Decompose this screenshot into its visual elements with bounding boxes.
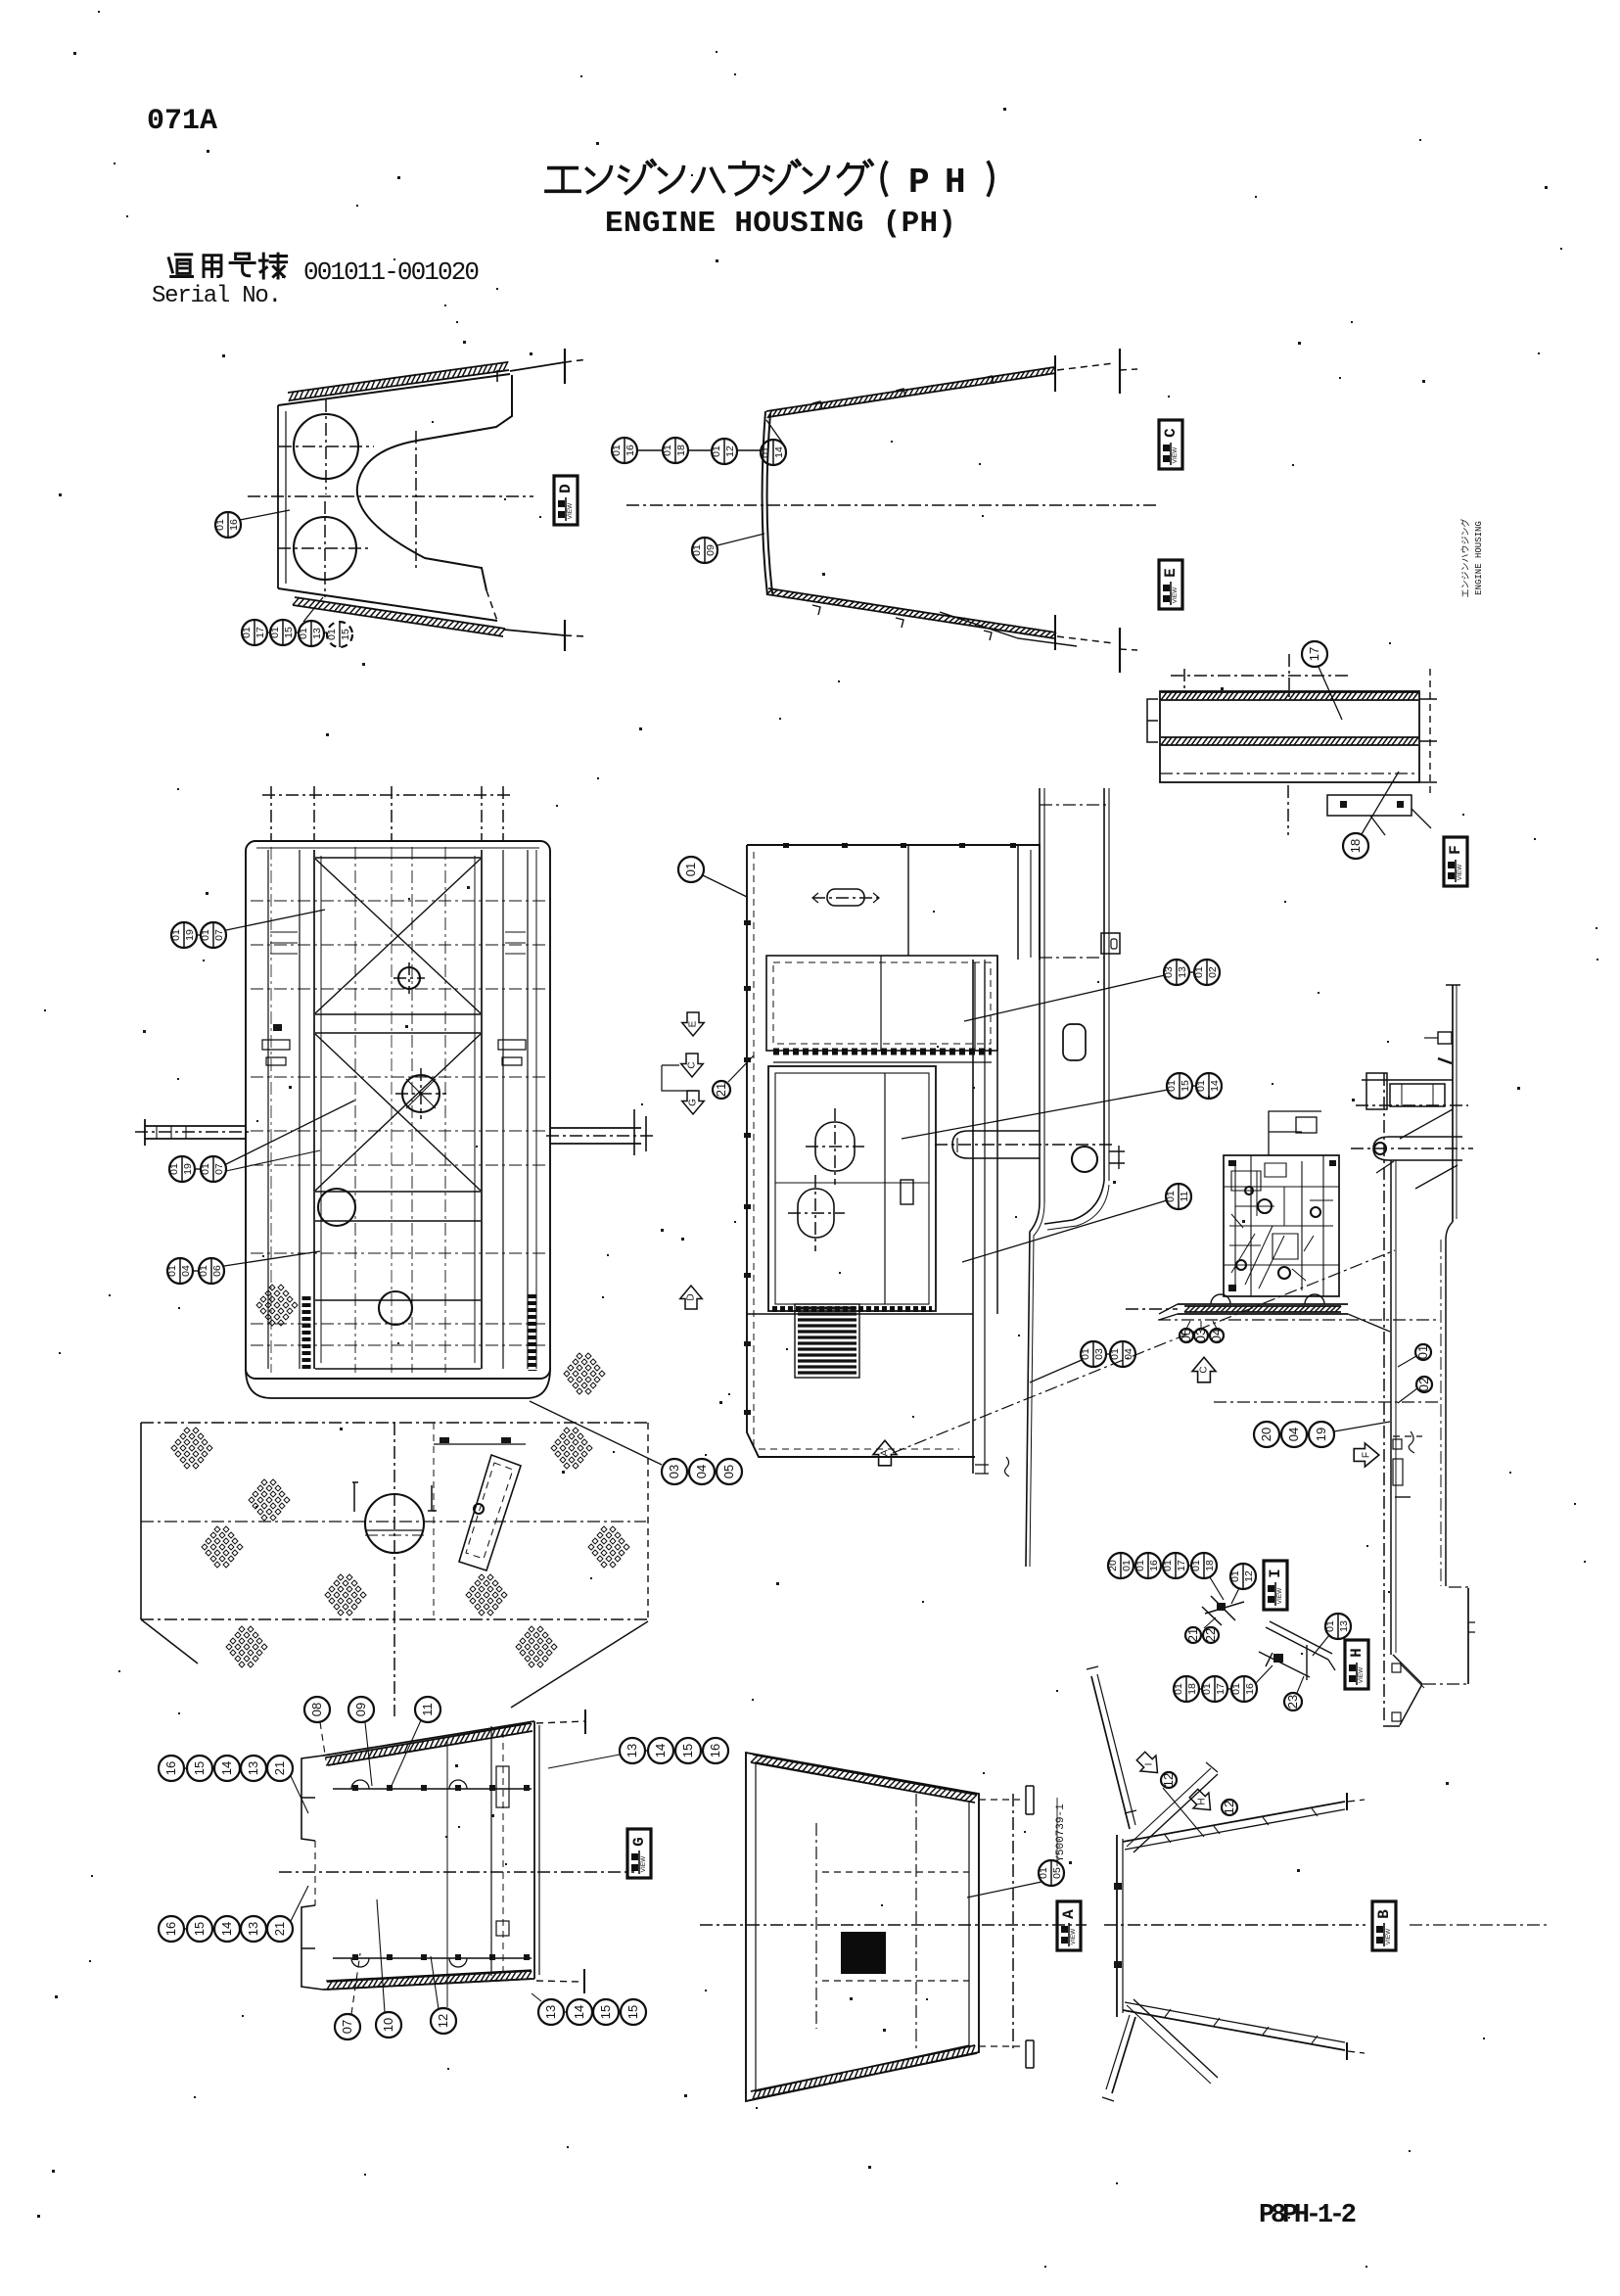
svg-text:E: E: [1162, 568, 1180, 578]
svg-text:01: 01: [166, 1265, 178, 1277]
svg-text:01: 01: [326, 629, 338, 640]
svg-text:01: 01: [1195, 1080, 1207, 1092]
svg-text:14: 14: [773, 446, 785, 458]
svg-text:H: H: [1197, 1798, 1208, 1804]
svg-text:03: 03: [1193, 1329, 1208, 1342]
svg-text:05: 05: [1179, 1329, 1193, 1342]
svg-text:01: 01: [298, 628, 309, 639]
svg-text:16: 16: [1148, 1560, 1160, 1571]
svg-text:21: 21: [272, 1922, 287, 1936]
svg-text:20: 20: [1107, 1560, 1119, 1571]
svg-text:04: 04: [694, 1465, 709, 1478]
svg-text:P: P: [908, 163, 930, 203]
svg-text:19: 19: [1314, 1428, 1328, 1441]
svg-text:01: 01: [1080, 1348, 1091, 1360]
svg-text:01: 01: [1173, 1683, 1184, 1695]
svg-text:14: 14: [653, 1744, 668, 1757]
svg-text:01: 01: [1324, 1620, 1336, 1632]
svg-text:G: G: [688, 1099, 699, 1106]
svg-text:16: 16: [163, 1922, 178, 1936]
svg-text:H: H: [945, 163, 966, 203]
svg-text:21: 21: [272, 1761, 287, 1775]
svg-text:03: 03: [667, 1465, 681, 1478]
svg-text:09: 09: [353, 1703, 368, 1716]
svg-text:F: F: [1362, 1452, 1372, 1458]
svg-text:VIEW: VIEW: [1070, 1928, 1077, 1945]
svg-text:17: 17: [1307, 647, 1321, 661]
svg-text:VIEW: VIEW: [1385, 1928, 1392, 1945]
svg-text:02: 02: [1416, 1378, 1431, 1391]
svg-text:11: 11: [1179, 1191, 1190, 1201]
svg-text:C: C: [1162, 428, 1180, 438]
svg-text:VIEW: VIEW: [1172, 586, 1179, 603]
svg-text:E: E: [688, 1020, 699, 1027]
svg-text:I: I: [1144, 1763, 1155, 1766]
svg-text:VIEW: VIEW: [640, 1855, 647, 1872]
svg-text:11: 11: [420, 1703, 435, 1716]
svg-text:05: 05: [721, 1465, 736, 1478]
svg-text:01: 01: [241, 627, 253, 638]
svg-text:エンジンハウジング: エンジンハウジング: [1459, 518, 1470, 597]
svg-text:01: 01: [198, 1265, 209, 1277]
svg-text:15: 15: [680, 1744, 695, 1757]
svg-text:01: 01: [1162, 1560, 1174, 1571]
svg-text:ENGINE HOUSING (PH): ENGINE HOUSING (PH): [605, 207, 956, 241]
svg-text:05: 05: [1051, 1867, 1063, 1879]
svg-text:12: 12: [1222, 1801, 1236, 1814]
svg-text:01: 01: [1201, 1683, 1213, 1695]
svg-text:14: 14: [1209, 1080, 1221, 1092]
svg-text:16: 16: [163, 1761, 178, 1775]
svg-text:01: 01: [1415, 1345, 1430, 1359]
svg-text:01: 01: [1165, 1191, 1177, 1202]
svg-text:01: 01: [760, 446, 771, 458]
svg-text:071A: 071A: [147, 105, 217, 138]
svg-text:01: 01: [1230, 1683, 1242, 1695]
svg-text:12: 12: [436, 2014, 450, 2028]
svg-text:04: 04: [1286, 1428, 1301, 1441]
svg-text:07: 07: [340, 2020, 354, 2034]
svg-text:17: 17: [255, 627, 266, 638]
svg-text:03: 03: [1093, 1348, 1105, 1360]
svg-text:16: 16: [228, 519, 240, 531]
svg-text:23: 23: [1285, 1695, 1300, 1709]
svg-text:14: 14: [219, 1922, 234, 1936]
svg-text:15: 15: [340, 629, 351, 640]
svg-text:01: 01: [214, 519, 226, 531]
svg-text:16: 16: [1244, 1683, 1256, 1695]
svg-text:01: 01: [1038, 1867, 1049, 1879]
svg-text:01: 01: [1190, 1560, 1202, 1571]
svg-text:04: 04: [1209, 1329, 1224, 1342]
svg-text:01: 01: [200, 1163, 211, 1175]
svg-text:01: 01: [269, 627, 281, 638]
svg-text:18: 18: [1348, 839, 1363, 853]
svg-text:03: 03: [1163, 966, 1175, 978]
svg-text:22: 22: [1203, 1628, 1218, 1642]
svg-text:C: C: [687, 1061, 698, 1068]
svg-text:A: A: [1060, 1909, 1078, 1919]
svg-text:07: 07: [213, 929, 225, 941]
svg-text:VIEW: VIEW: [567, 502, 574, 519]
svg-text:13: 13: [543, 2005, 558, 2019]
svg-text:01: 01: [170, 929, 182, 941]
svg-text:VIEW: VIEW: [1358, 1666, 1365, 1683]
svg-text:01: 01: [1193, 966, 1205, 978]
svg-text:13: 13: [1338, 1620, 1350, 1632]
svg-text:10: 10: [381, 2018, 395, 2032]
svg-text:15: 15: [192, 1761, 207, 1775]
svg-text:01: 01: [200, 929, 211, 941]
svg-text:VIEW: VIEW: [1457, 864, 1463, 880]
svg-text:01: 01: [611, 445, 623, 456]
svg-text:16: 16: [708, 1744, 722, 1757]
svg-text:04: 04: [180, 1265, 192, 1277]
svg-text:C: C: [1199, 1366, 1210, 1373]
svg-text:01: 01: [1121, 1560, 1133, 1571]
svg-text:01: 01: [168, 1163, 180, 1175]
svg-text:H: H: [1348, 1648, 1365, 1658]
svg-text:14: 14: [572, 2005, 586, 2019]
svg-text:ENGINE HOUSING: ENGINE HOUSING: [1474, 521, 1484, 595]
svg-text:VIEW: VIEW: [1276, 1587, 1283, 1604]
svg-text:21: 21: [1185, 1628, 1200, 1642]
svg-text:15: 15: [1180, 1080, 1191, 1092]
svg-text:D: D: [686, 1293, 697, 1300]
svg-text:09: 09: [705, 544, 717, 556]
svg-text:15: 15: [192, 1922, 207, 1936]
svg-text:13: 13: [1177, 966, 1188, 978]
svg-text:08: 08: [309, 1703, 324, 1716]
svg-text:13: 13: [246, 1922, 260, 1936]
svg-text:Serial No.: Serial No.: [152, 283, 282, 309]
svg-text:19: 19: [182, 1163, 194, 1175]
svg-text:02: 02: [1207, 966, 1219, 978]
svg-text:B: B: [1375, 1909, 1393, 1919]
svg-text:01: 01: [1109, 1348, 1121, 1360]
svg-text:01: 01: [1166, 1080, 1178, 1092]
svg-text:18: 18: [1204, 1560, 1216, 1571]
svg-text:A: A: [880, 1449, 891, 1456]
svg-text:15: 15: [598, 2005, 613, 2019]
svg-text:P8PH-1-2: P8PH-1-2: [1259, 2201, 1357, 2230]
svg-text:13: 13: [625, 1744, 639, 1757]
svg-text:17: 17: [1176, 1560, 1187, 1571]
svg-text:15: 15: [625, 2005, 640, 2019]
svg-text:18: 18: [675, 445, 687, 456]
svg-text:VIEW: VIEW: [1172, 446, 1179, 463]
svg-text:G: G: [630, 1837, 648, 1847]
svg-text:07: 07: [213, 1163, 225, 1175]
svg-text:16: 16: [625, 445, 636, 456]
svg-text:13: 13: [311, 628, 323, 639]
svg-text:01: 01: [1229, 1570, 1241, 1582]
svg-text:12: 12: [1161, 1773, 1176, 1787]
svg-text:001011-001020: 001011-001020: [303, 258, 480, 287]
svg-text:15: 15: [283, 627, 295, 638]
svg-text:21: 21: [714, 1083, 728, 1097]
svg-text:01: 01: [683, 863, 698, 876]
svg-text:01: 01: [711, 445, 722, 457]
svg-text:14: 14: [219, 1761, 234, 1775]
svg-text:12: 12: [724, 445, 736, 457]
svg-text:01: 01: [1134, 1560, 1146, 1571]
svg-text:13: 13: [246, 1761, 260, 1775]
svg-text:I: I: [1267, 1569, 1284, 1578]
svg-text:01: 01: [662, 445, 673, 456]
svg-text:D: D: [557, 484, 575, 493]
svg-text:F: F: [1447, 845, 1464, 855]
svg-text:19: 19: [184, 929, 196, 941]
svg-text:01: 01: [691, 544, 703, 556]
svg-text:20: 20: [1259, 1428, 1273, 1441]
svg-text:06: 06: [211, 1265, 223, 1277]
svg-text:17: 17: [1215, 1683, 1227, 1695]
svg-text:18: 18: [1186, 1683, 1198, 1695]
svg-text:12: 12: [1243, 1570, 1255, 1582]
